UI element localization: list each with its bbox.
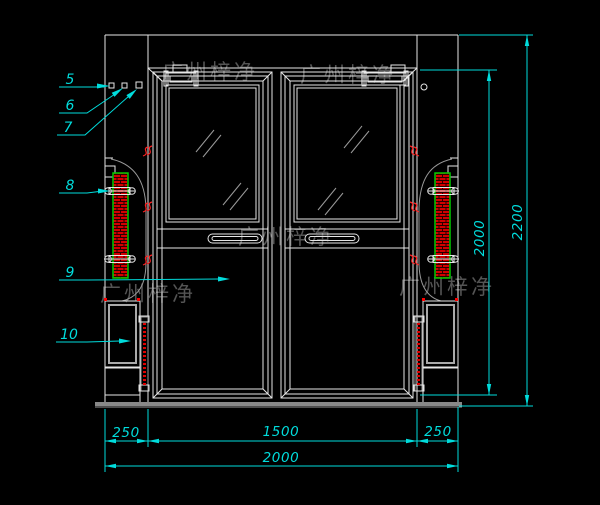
dim-250-right: 250: [424, 424, 452, 440]
cad-drawing-canvas[interactable]: 广州梓净 广州梓净 广州梓净 广州梓净 广州梓净: [0, 0, 600, 505]
callout-label: 5: [66, 72, 75, 88]
door-elevation-drawing: 广州梓净 广州梓净 广州梓净 广州梓净 广州梓净: [0, 0, 600, 505]
callout-label: 10: [60, 327, 78, 343]
callout-label: 7: [64, 120, 73, 136]
dim-2000-total: 2000: [263, 450, 300, 466]
callout-label: 9: [66, 265, 75, 281]
callout-label: 8: [66, 178, 75, 194]
dim-1500: 1500: [263, 424, 300, 440]
dim-250-left: 250: [112, 425, 140, 441]
dim-2000-door-height: 2000: [472, 220, 488, 257]
dim-2200-total-height: 2200: [510, 204, 526, 241]
watermark-text: 广州梓净: [300, 63, 396, 87]
callout-label: 6: [66, 98, 75, 114]
floor-line: [95, 402, 462, 406]
